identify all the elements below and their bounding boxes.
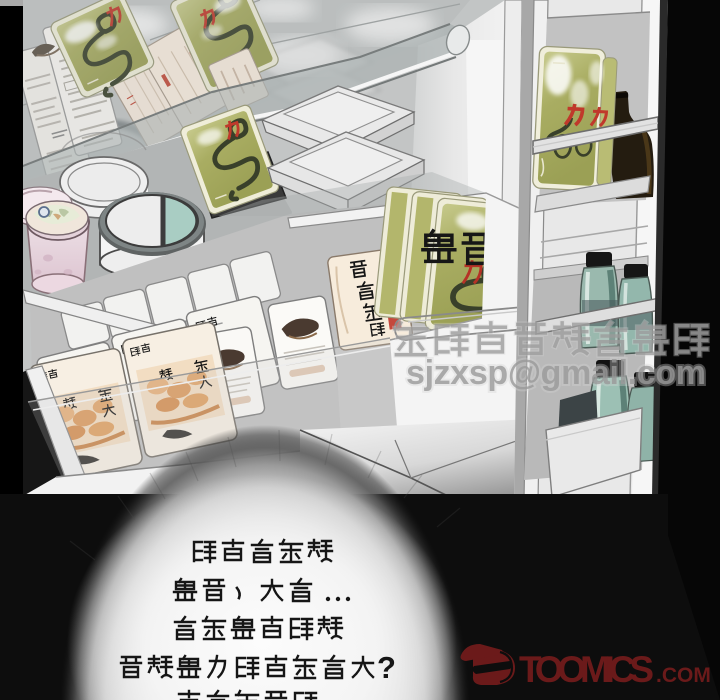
- svg-text:?: ?: [377, 650, 396, 685]
- svg-text:sjzxsp@gmail.com: sjzxsp@gmail.com: [406, 354, 706, 392]
- svg-text:TOOMICS: TOOMICS: [519, 649, 653, 690]
- svg-text:.COM: .COM: [656, 664, 711, 687]
